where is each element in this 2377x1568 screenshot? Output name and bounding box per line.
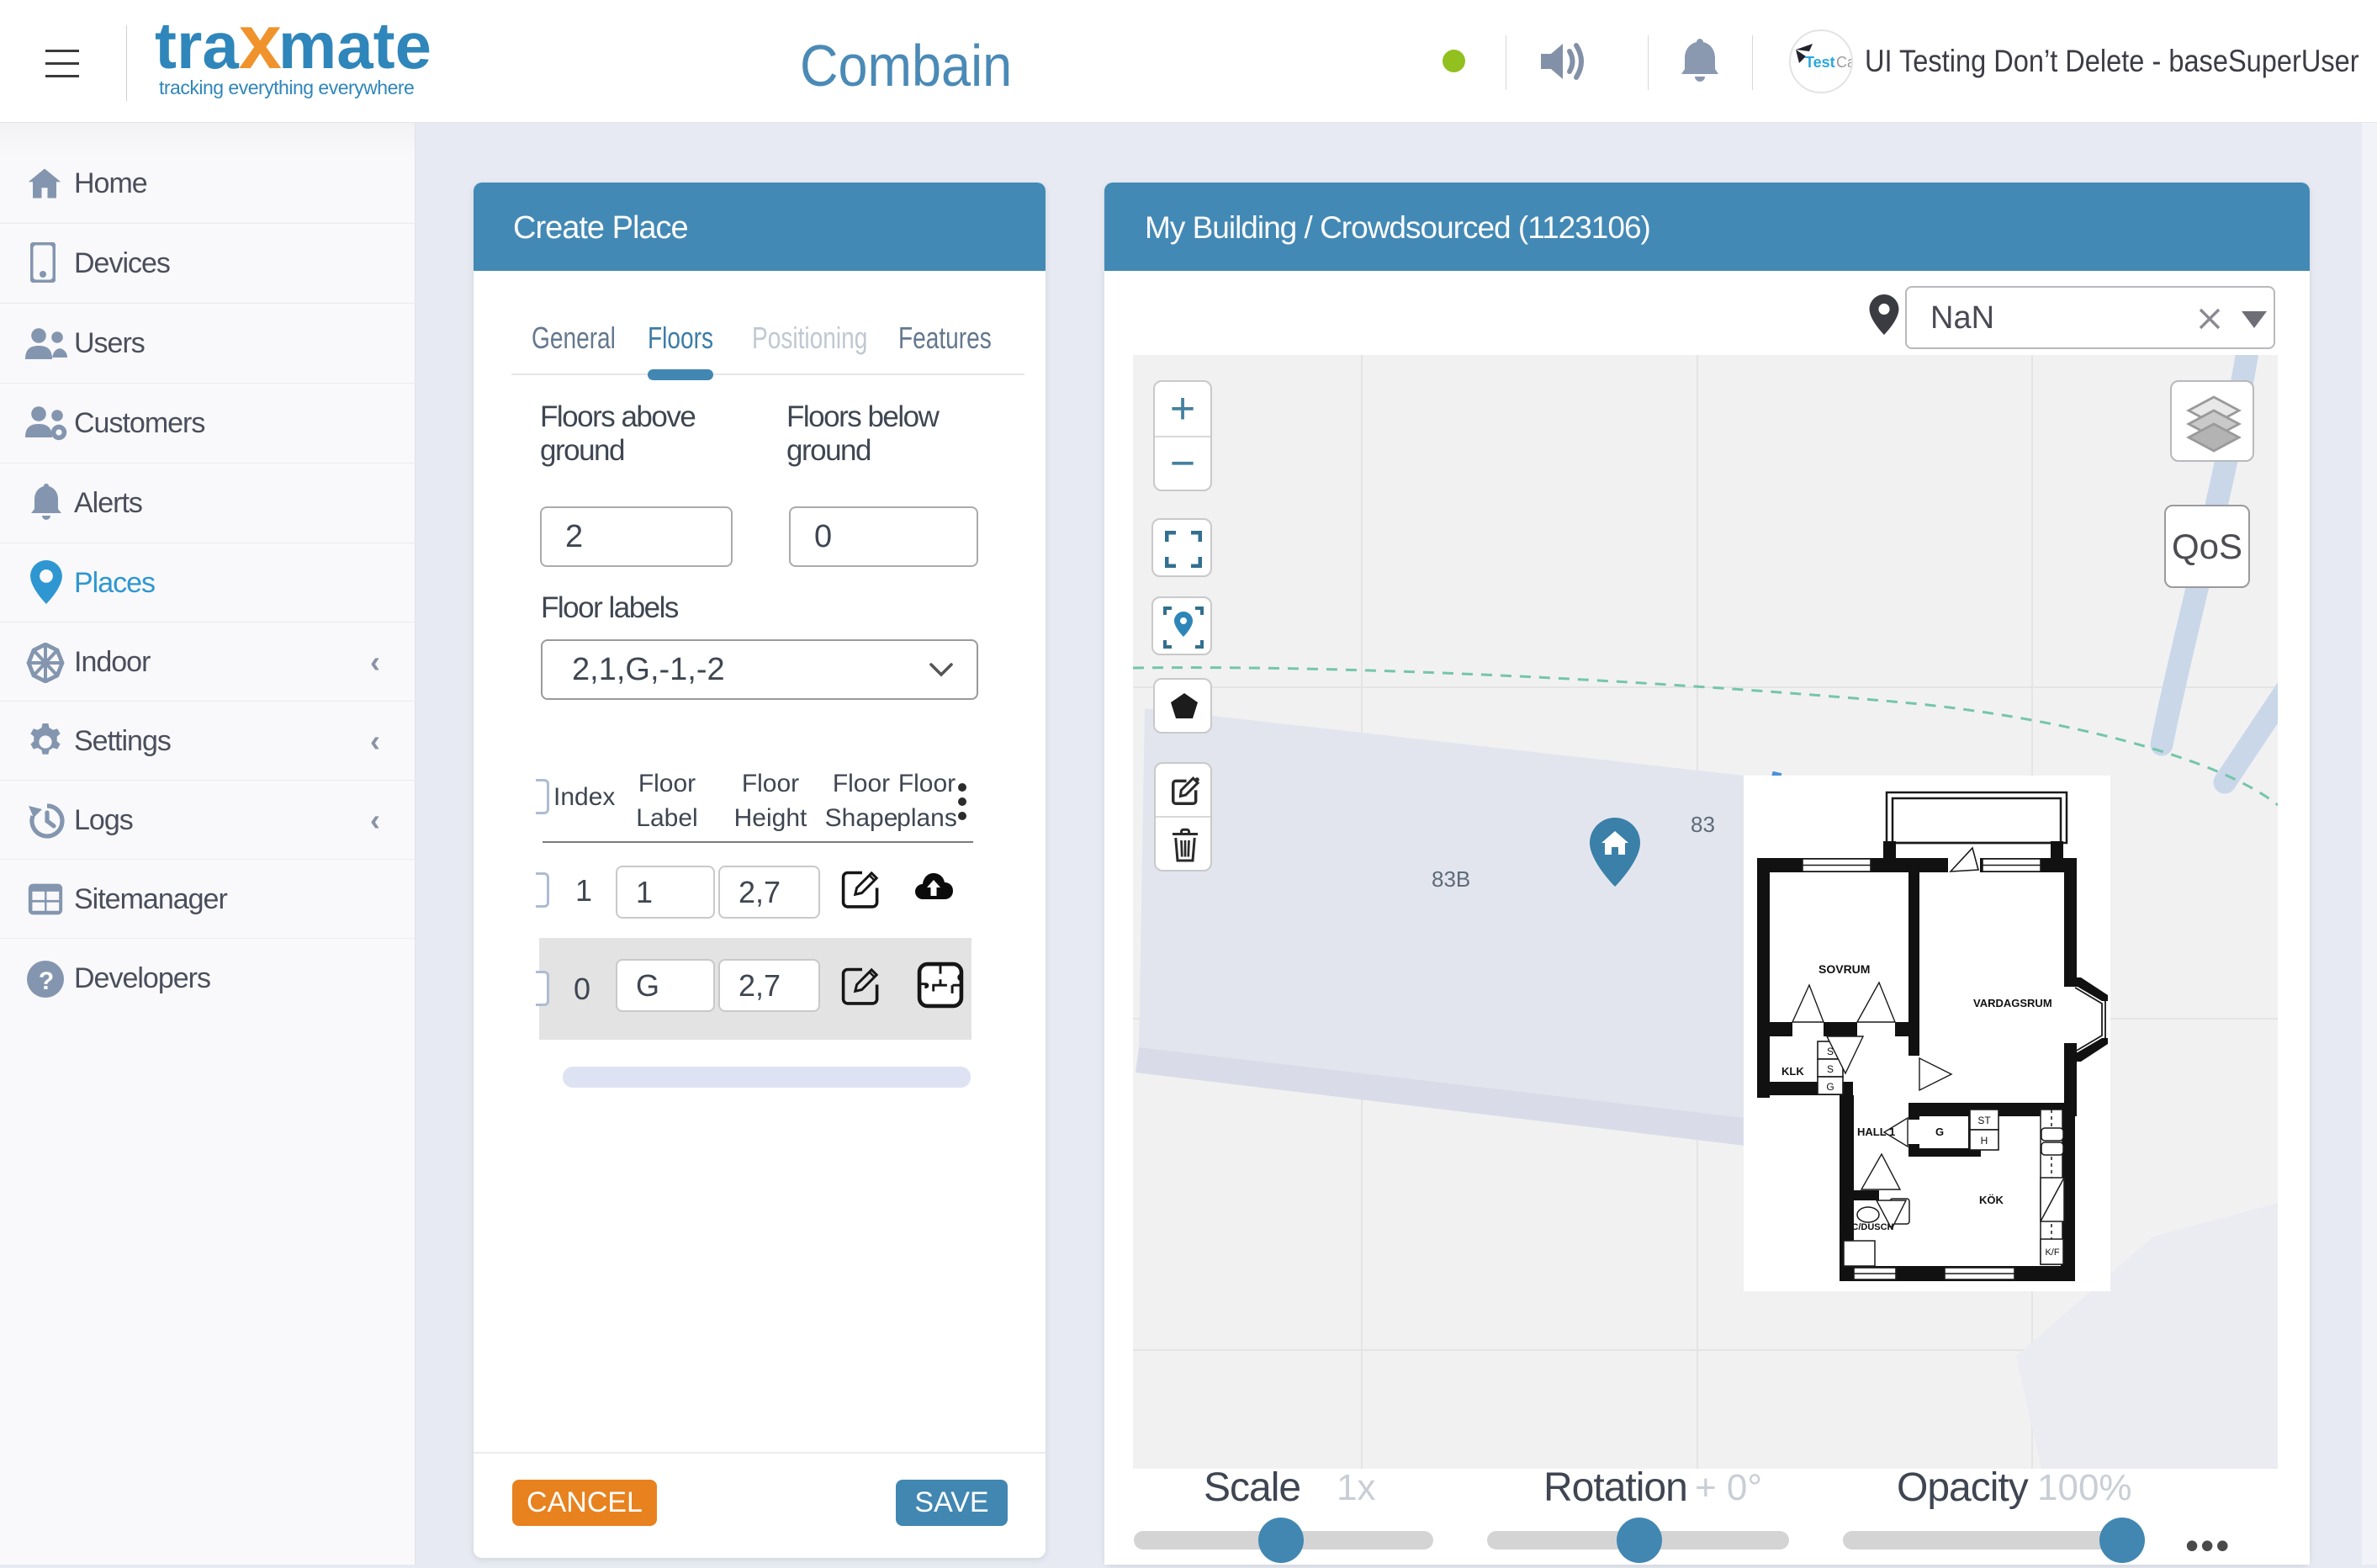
svg-text:KLK: KLK xyxy=(1781,1065,1804,1078)
svg-text:VARDAGSRUM: VARDAGSRUM xyxy=(1973,997,2052,1009)
svg-text:Test: Test xyxy=(1805,54,1835,71)
svg-text:83B: 83B xyxy=(1432,866,1470,892)
svg-text:G: G xyxy=(1826,1081,1834,1093)
svg-text:G: G xyxy=(1935,1126,1944,1138)
svg-text:Ca: Ca xyxy=(1836,54,1851,71)
svg-text:83: 83 xyxy=(1691,812,1715,837)
svg-text:WC/DUSCH: WC/DUSCH xyxy=(1843,1222,1894,1232)
svg-text:SOVRUM: SOVRUM xyxy=(1818,962,1870,976)
svg-text:H: H xyxy=(1981,1135,1988,1147)
svg-text:HALL 1: HALL 1 xyxy=(1857,1126,1895,1138)
svg-text:K/F: K/F xyxy=(2045,1248,2059,1258)
svg-text:ST: ST xyxy=(1977,1115,1991,1126)
svg-text:KÖK: KÖK xyxy=(1979,1194,2004,1206)
svg-text:S: S xyxy=(1827,1063,1834,1075)
svg-text:?: ? xyxy=(39,967,53,995)
